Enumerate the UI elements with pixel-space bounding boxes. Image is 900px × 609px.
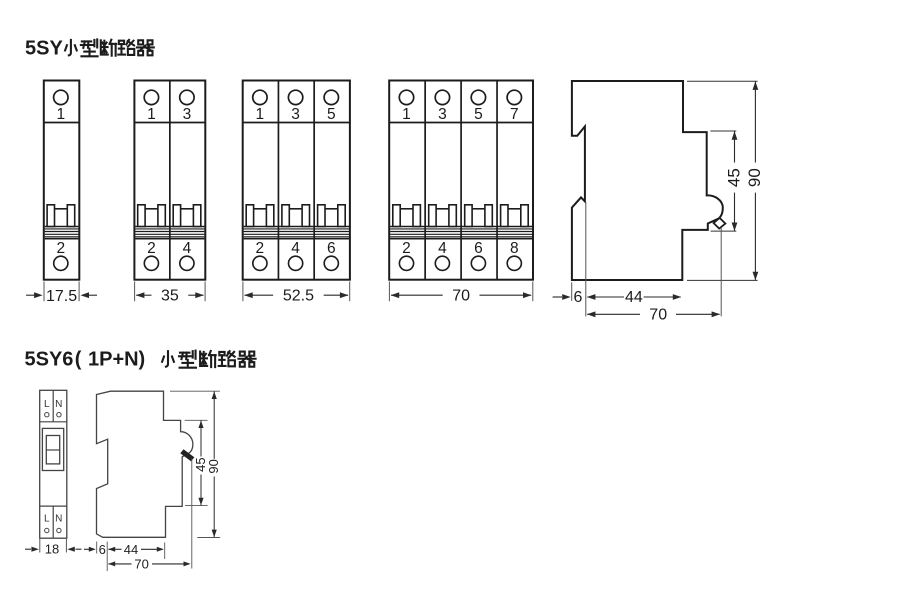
svg-text:18: 18 bbox=[45, 541, 59, 556]
svg-text:N: N bbox=[55, 513, 62, 524]
svg-text:5: 5 bbox=[474, 106, 483, 123]
svg-text:3: 3 bbox=[291, 106, 300, 123]
svg-text:6: 6 bbox=[573, 289, 582, 306]
svg-text:8: 8 bbox=[510, 240, 519, 257]
svg-text:44: 44 bbox=[625, 289, 643, 306]
svg-text:7: 7 bbox=[510, 106, 519, 123]
svg-text:70: 70 bbox=[134, 557, 148, 572]
svg-text:(: ( bbox=[75, 348, 82, 370]
svg-text:1: 1 bbox=[256, 106, 265, 123]
svg-text:2: 2 bbox=[147, 240, 156, 257]
svg-text:3: 3 bbox=[438, 106, 447, 123]
svg-text:4: 4 bbox=[438, 240, 447, 257]
svg-text:3: 3 bbox=[183, 106, 192, 123]
svg-text:N: N bbox=[55, 399, 62, 410]
svg-text:5: 5 bbox=[327, 106, 336, 123]
svg-text:6: 6 bbox=[327, 240, 336, 257]
svg-text:1: 1 bbox=[147, 106, 156, 123]
svg-text:L: L bbox=[44, 399, 50, 410]
svg-text:44: 44 bbox=[124, 542, 138, 557]
svg-text:90: 90 bbox=[745, 168, 764, 187]
svg-text:6: 6 bbox=[474, 240, 483, 257]
svg-text:70: 70 bbox=[452, 288, 470, 305]
svg-text:1P+N: 1P+N bbox=[88, 348, 139, 370]
svg-text:4: 4 bbox=[183, 240, 192, 257]
svg-text:2: 2 bbox=[256, 240, 265, 257]
svg-text:L: L bbox=[44, 513, 50, 524]
svg-text:4: 4 bbox=[291, 240, 300, 257]
svg-text:45: 45 bbox=[724, 168, 743, 187]
svg-text:2: 2 bbox=[57, 240, 66, 257]
svg-text:1: 1 bbox=[402, 106, 411, 123]
svg-text:1: 1 bbox=[57, 106, 66, 123]
svg-text:70: 70 bbox=[649, 307, 667, 324]
svg-text:): ) bbox=[139, 348, 146, 370]
svg-text:6: 6 bbox=[99, 542, 106, 557]
svg-text:52.5: 52.5 bbox=[283, 288, 314, 305]
svg-text:5SY6: 5SY6 bbox=[25, 348, 74, 370]
svg-text:35: 35 bbox=[161, 288, 179, 305]
svg-text:17.5: 17.5 bbox=[46, 288, 77, 305]
svg-text:90: 90 bbox=[206, 459, 221, 473]
svg-text:5SY: 5SY bbox=[25, 38, 63, 60]
svg-text:2: 2 bbox=[402, 240, 411, 257]
